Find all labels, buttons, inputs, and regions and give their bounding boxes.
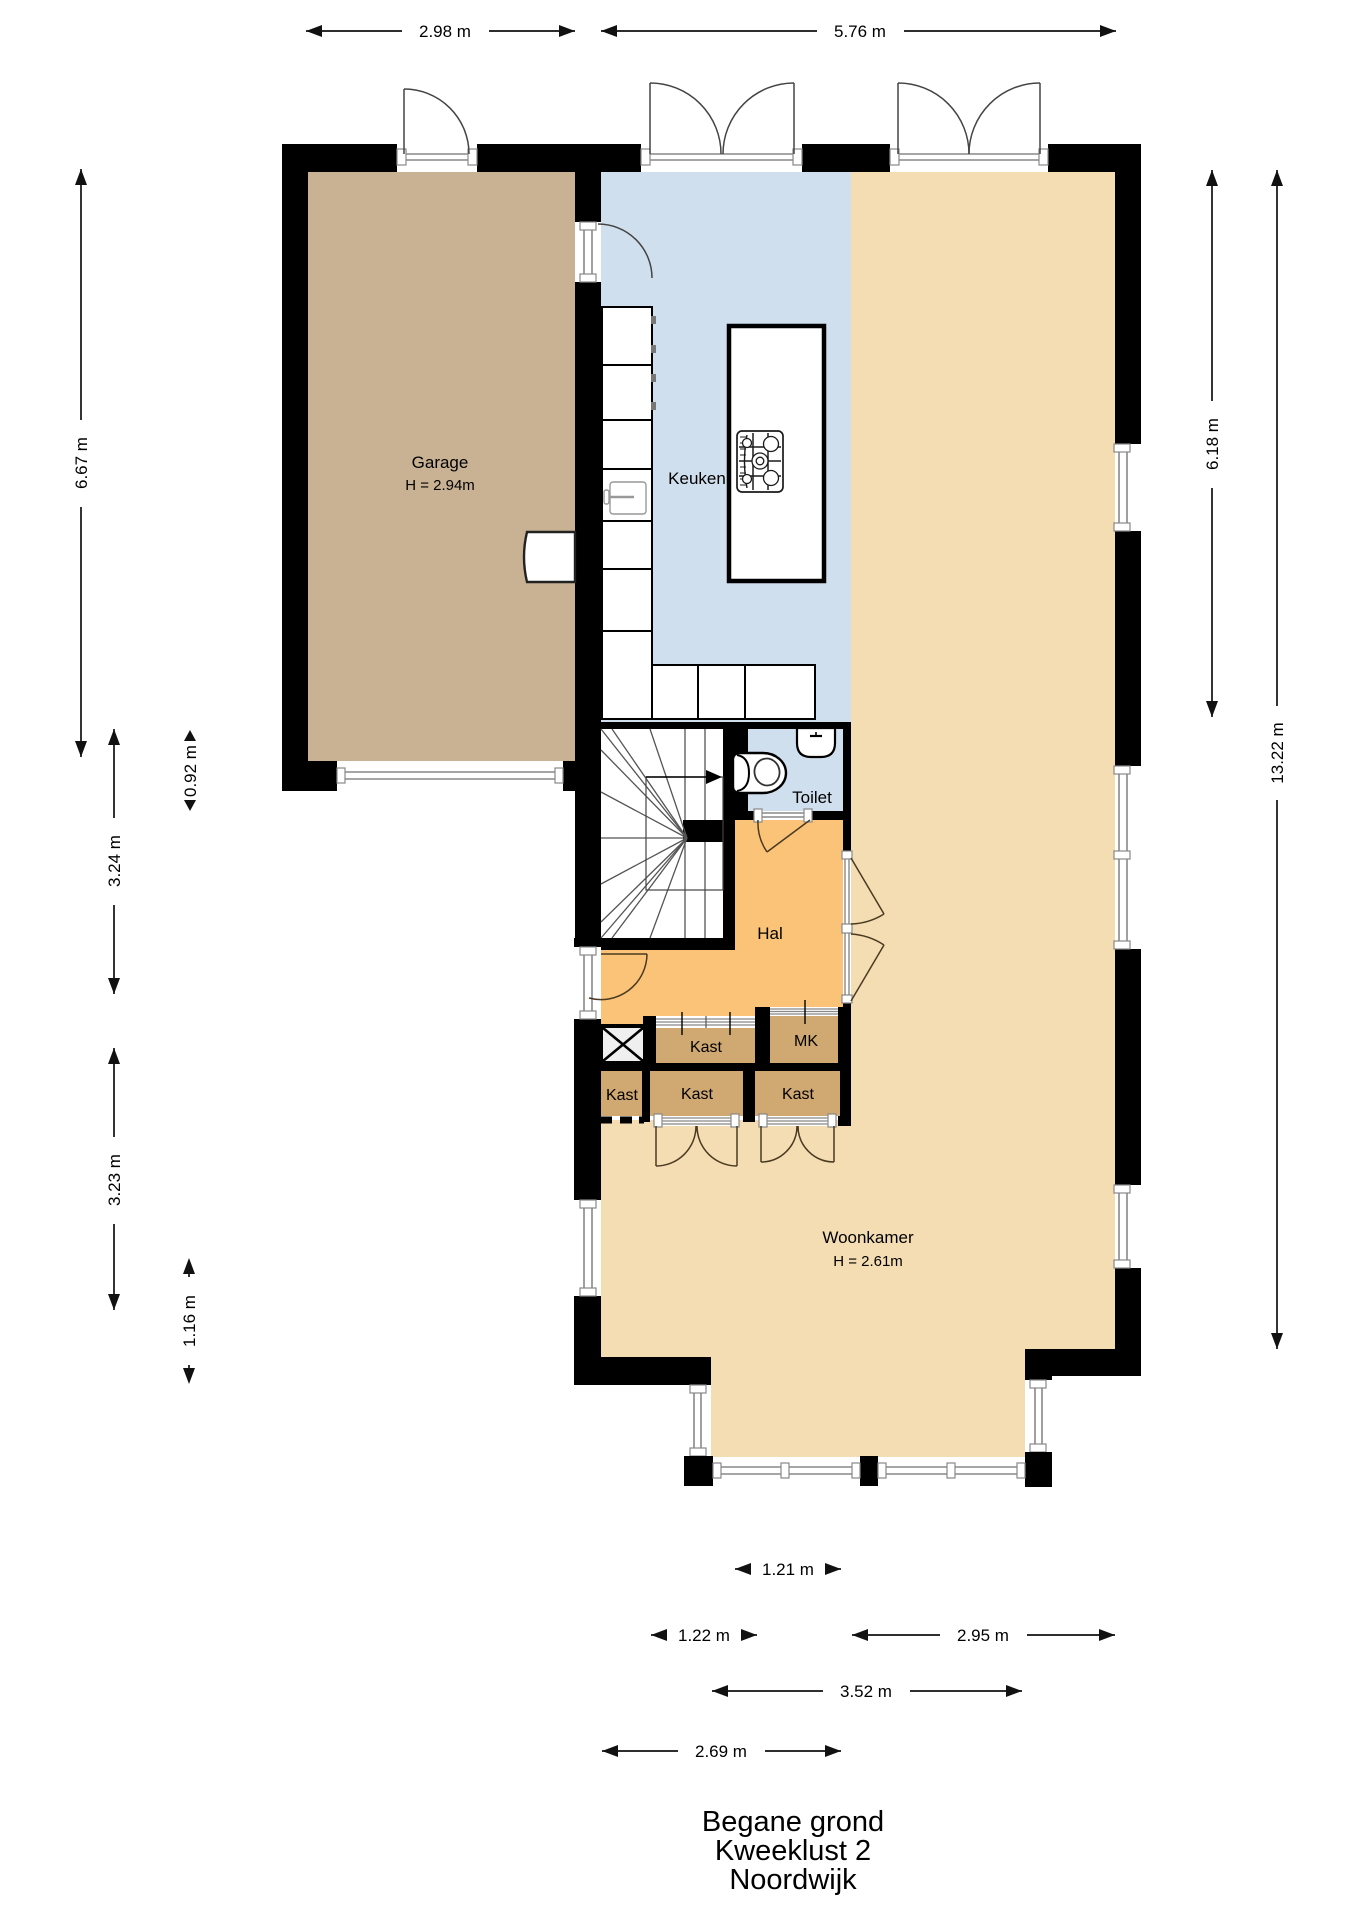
svg-text:Kweeklust 2: Kweeklust 2 [715,1835,871,1867]
svg-text:13.22 m: 13.22 m [1268,722,1287,783]
svg-text:Kast: Kast [681,1086,714,1103]
svg-text:Toilet: Toilet [792,788,832,807]
svg-text:3.52 m: 3.52 m [840,1682,892,1701]
svg-text:Begane grond: Begane grond [702,1806,884,1838]
svg-text:1.22 m: 1.22 m [678,1626,730,1645]
svg-text:Garage: Garage [412,453,469,472]
svg-text:Kast: Kast [606,1087,639,1104]
svg-text:1.16 m: 1.16 m [180,1295,199,1347]
svg-text:2.95 m: 2.95 m [957,1626,1009,1645]
svg-text:3.24 m: 3.24 m [105,835,124,887]
svg-text:H = 2.61m: H = 2.61m [833,1253,903,1270]
svg-text:2.98 m: 2.98 m [419,22,471,41]
svg-text:2.69 m: 2.69 m [695,1742,747,1761]
svg-text:Hal: Hal [757,924,783,943]
svg-text:Keuken: Keuken [668,469,726,488]
svg-text:5.76 m: 5.76 m [834,22,886,41]
svg-text:Kast: Kast [690,1039,723,1056]
svg-text:Kast: Kast [782,1086,815,1103]
svg-text:0.92 m: 0.92 m [181,745,200,797]
svg-text:6.67 m: 6.67 m [72,437,91,489]
svg-text:Noordwijk: Noordwijk [729,1864,857,1896]
svg-text:MK: MK [794,1033,818,1050]
svg-text:3.23 m: 3.23 m [105,1154,124,1206]
svg-text:H = 2.94m: H = 2.94m [405,477,475,494]
svg-text:1.21 m: 1.21 m [762,1560,814,1579]
svg-text:6.18 m: 6.18 m [1203,418,1222,470]
svg-text:Woonkamer: Woonkamer [822,1228,914,1247]
